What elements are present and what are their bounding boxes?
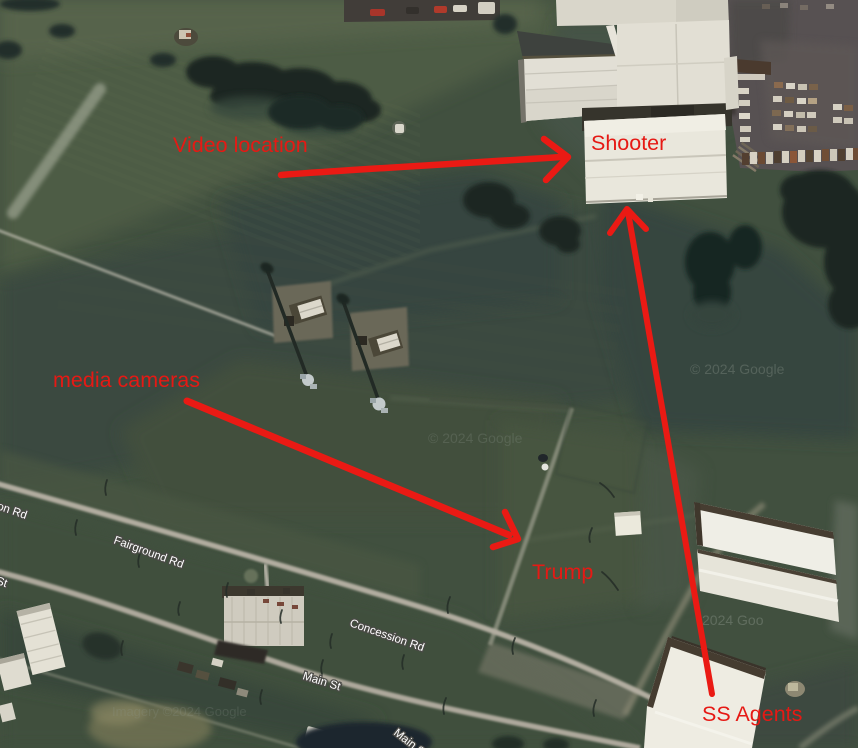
svg-text:© 2024 Google: © 2024 Google	[690, 361, 785, 377]
svg-text:2024 Goo: 2024 Goo	[702, 612, 764, 628]
svg-text:SS Agents: SS Agents	[702, 702, 802, 726]
svg-text:Imagery ©2024 Google: Imagery ©2024 Google	[112, 704, 247, 719]
svg-text:media cameras: media cameras	[53, 368, 200, 392]
svg-text:Shooter: Shooter	[591, 131, 666, 155]
svg-text:Trump: Trump	[532, 560, 593, 584]
svg-text:Video location: Video location	[173, 133, 308, 157]
svg-text:© 2024 Google: © 2024 Google	[428, 430, 523, 446]
